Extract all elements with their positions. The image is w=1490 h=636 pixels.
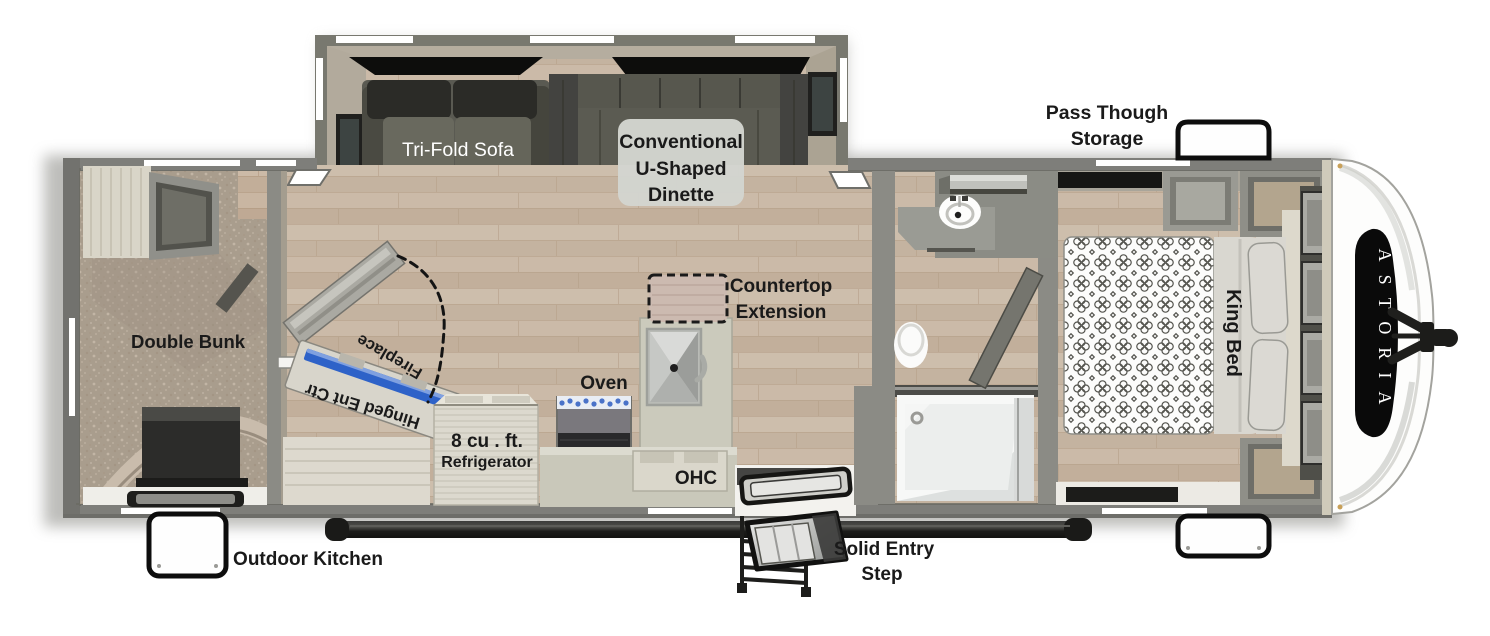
svg-text:Solid Entry: Solid Entry [834,539,935,560]
svg-text:Extension: Extension [736,302,827,323]
svg-text:OHC: OHC [675,468,718,489]
svg-text:Conventional: Conventional [619,131,743,153]
svg-text:Step: Step [861,564,902,585]
svg-text:Double Bunk: Double Bunk [131,331,246,352]
svg-text:ASTORIA: ASTORIA [1375,249,1395,418]
svg-text:King Bed: King Bed [1222,289,1244,377]
svg-text:U-Shaped: U-Shaped [635,158,726,180]
svg-text:Countertop: Countertop [730,276,832,297]
svg-text:Outdoor Kitchen: Outdoor Kitchen [233,549,383,570]
svg-text:8 cu . ft.: 8 cu . ft. [451,431,523,452]
svg-text:Refrigerator: Refrigerator [441,454,533,471]
svg-text:Storage: Storage [1071,128,1144,150]
svg-text:Oven: Oven [580,373,628,394]
svg-text:Pass Though: Pass Though [1046,102,1168,124]
svg-text:Tri-Fold Sofa: Tri-Fold Sofa [402,139,514,161]
svg-text:Dinette: Dinette [648,184,714,206]
